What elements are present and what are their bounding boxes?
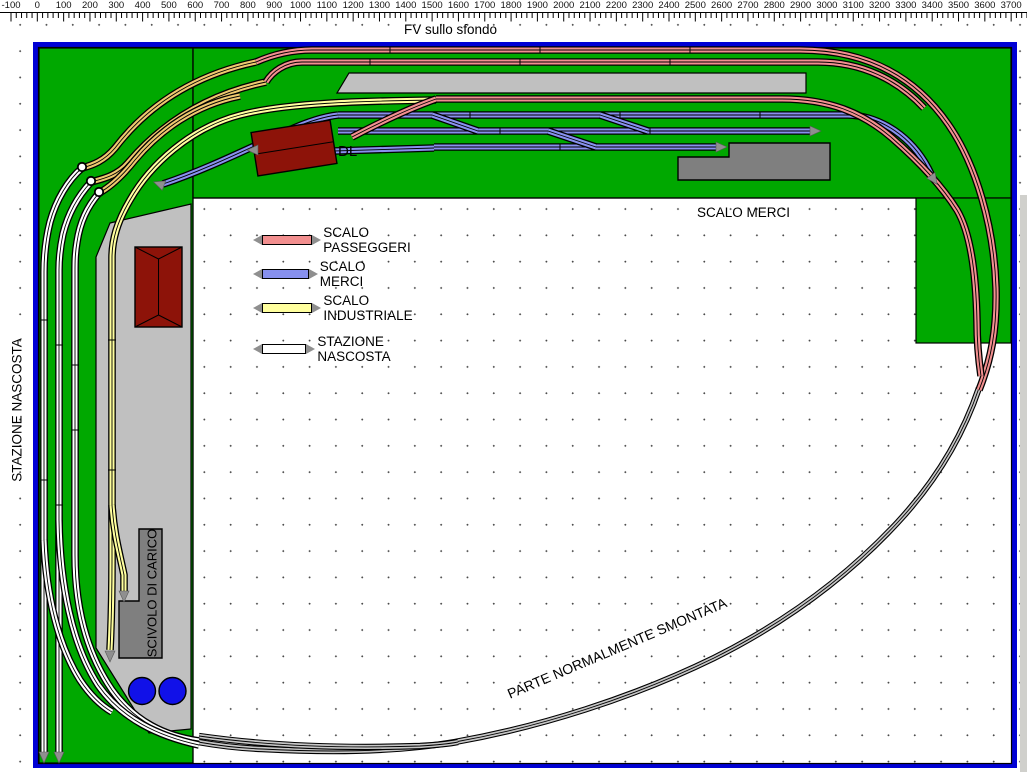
turntable-circle[interactable] xyxy=(159,678,186,705)
legend-swatch-industriale xyxy=(262,303,312,313)
label-stazione-nascosta: STAZIONE NASCOSTA xyxy=(10,338,25,482)
upper-platform[interactable] xyxy=(337,73,806,93)
legend-item-merci: SCALO MERCI xyxy=(262,266,385,281)
horizontal-ruler: -100010020030040050060070080090010001100… xyxy=(0,0,1027,22)
legend-item-passeggeri: SCALO PASSEGGERI xyxy=(262,232,427,247)
track-plan-editor: -100010020030040050060070080090010001100… xyxy=(0,0,1027,772)
turntable-circle[interactable] xyxy=(129,678,156,705)
track-group-dismantled[interactable] xyxy=(198,388,979,751)
legend-swatch-merci xyxy=(262,269,309,279)
legend-item-industriale: SCALO INDUSTRIALE xyxy=(262,300,428,315)
legend-swatch-nascosta xyxy=(262,344,306,354)
plan-title: FV sullo sfondo xyxy=(404,22,497,37)
legend-item-nascosta: STAZIONE NASCOSTA xyxy=(262,341,412,356)
legend-swatch-passeggeri xyxy=(262,235,312,245)
label-scivolo-di-carico: SCIVOLO DI CARICO xyxy=(145,529,160,658)
label-scalo-merci: SCALO MERCI xyxy=(697,205,790,220)
station-building[interactable] xyxy=(135,247,182,327)
window-edge xyxy=(1020,195,1027,772)
label-dl: DL xyxy=(338,143,357,160)
